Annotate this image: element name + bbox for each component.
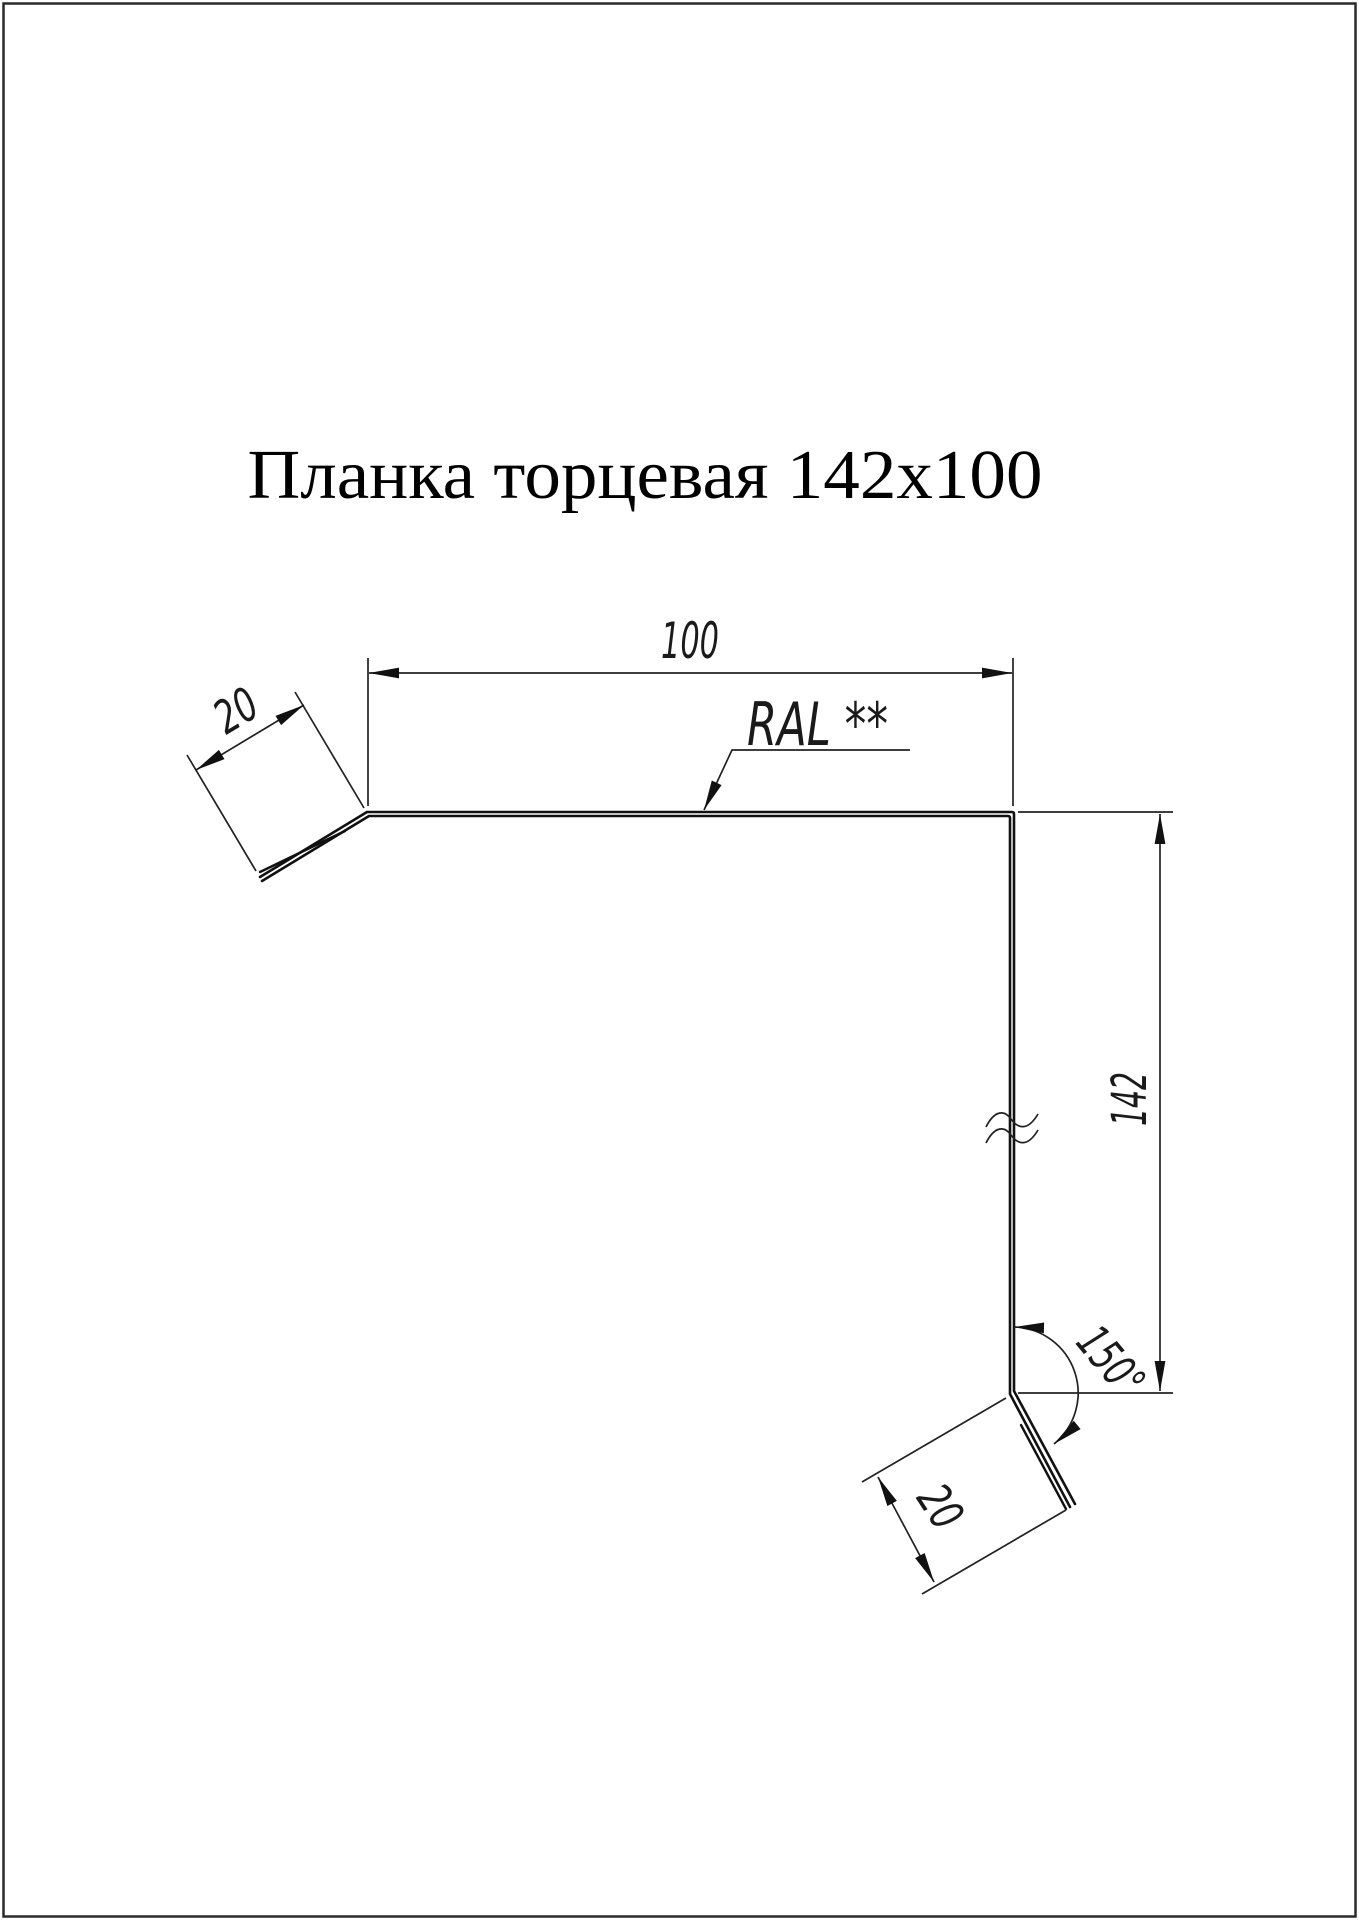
dim-height-label: 142 [1102,1072,1158,1126]
bottom-flange-hem [1021,1425,1066,1509]
coating-note: RAL ** [704,690,910,810]
profile-inner-face [262,816,1070,1507]
break-symbol [986,1113,1038,1143]
dim-width-top: 100 [368,612,1013,806]
ral-label: RAL ** [747,690,888,760]
drawing-page: Планка торцевая 142x100 100 [0,0,1359,1920]
dim-width-label: 100 [661,612,719,670]
dim-flange-top-label: 20 [204,677,268,745]
dim-angle-arc [1014,1327,1078,1444]
dim-flange-top-ext-outer [187,755,256,871]
page-border [4,4,1356,1917]
dim-angle-bottom: 150° [1014,1315,1156,1444]
profile-outer-face [260,812,1075,1504]
dim-flange-bottom-ext-inner [862,1398,1006,1482]
dim-height-right: 142 [1018,812,1173,1393]
dim-flange-bottom: 20 [862,1398,1066,1594]
page-title: Планка торцевая 142x100 [248,437,1043,514]
profile-outline [260,812,1075,1509]
top-flange-hem [260,831,345,872]
dim-flange-bottom-label: 20 [906,1474,974,1539]
drawing-canvas: Планка торцевая 142x100 100 [0,0,1359,1920]
dim-angle-label: 150° [1066,1315,1156,1408]
dim-flange-top-ext-inner [295,692,364,808]
dim-flange-top: 20 [187,677,364,871]
